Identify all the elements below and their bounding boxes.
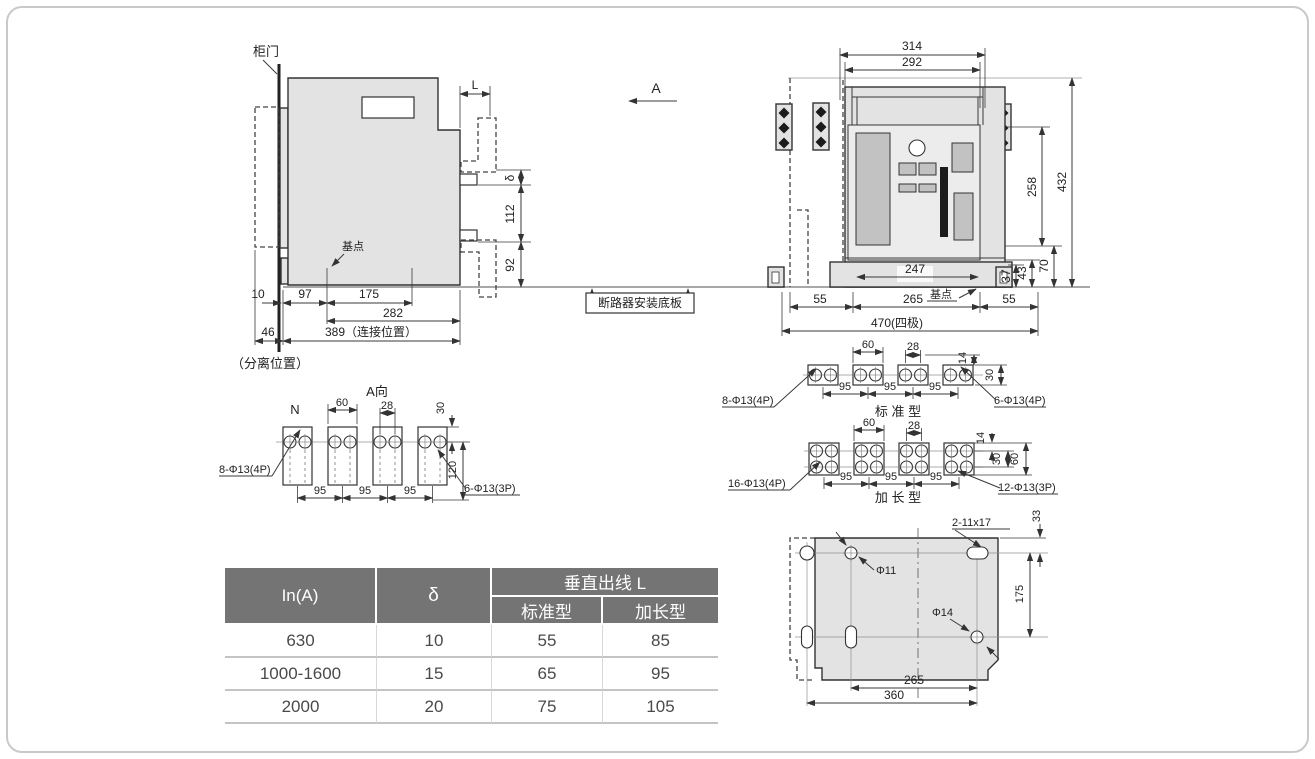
table-cell: 95 [603, 658, 718, 691]
left-foot-notch [772, 272, 779, 283]
table-header-standard: 标准型 [492, 597, 603, 625]
dim-360: 360 [884, 688, 904, 702]
dim-30: 30 [435, 402, 447, 414]
dim-55-left: 55 [813, 292, 827, 306]
view-direction-arrow: A [629, 80, 677, 101]
plate-slot-left [802, 626, 813, 648]
ghost-bracket-diamonds [779, 108, 790, 149]
table-header-in-a: In(A) [225, 568, 377, 625]
table-cell: 630 [225, 625, 377, 658]
trip-unit-display [856, 133, 890, 245]
table-cell: 55 [492, 625, 603, 658]
holes-label-12-13-3p: 12-Φ13(3P) [998, 482, 1056, 494]
panel-button-1 [899, 163, 916, 175]
dim-95: 95 [885, 471, 897, 483]
dim-95: 95 [884, 381, 896, 393]
busbar-pad [373, 427, 402, 485]
dim-60: 60 [336, 397, 348, 409]
phi14-label: Φ14 [932, 607, 953, 619]
front-view: 247 基点 314 292 258 432 70 43 37 [768, 39, 1072, 336]
ghost-step [797, 210, 808, 285]
indicator-window-top [952, 143, 973, 172]
view-arrow-label: A [651, 80, 661, 96]
dim-247: 247 [905, 262, 925, 276]
dim-95: 95 [929, 381, 941, 393]
dim-97: 97 [298, 287, 312, 301]
plate-slot-mid [846, 626, 857, 648]
door-leader [263, 60, 277, 74]
dim-46: 46 [261, 325, 275, 339]
panel-button-2 [919, 163, 936, 175]
a-view-title: A向 [366, 384, 388, 399]
plate-hole-plain [800, 546, 814, 560]
dim-95: 95 [839, 381, 851, 393]
dim-258: 258 [1025, 177, 1039, 197]
push-button [909, 140, 925, 156]
dim-70: 70 [1037, 259, 1051, 273]
dim-55-right: 55 [1002, 292, 1016, 306]
mount-plate-label: 断路器安装底板 [598, 295, 682, 310]
dim-92: 92 [503, 258, 517, 272]
dim-60: 60 [863, 417, 875, 429]
nameplate-window [362, 97, 414, 118]
dim-10: 10 [251, 287, 265, 301]
dim-265-front: 265 [903, 292, 923, 306]
base-point-label-side: 基点 [342, 240, 364, 253]
busbar-ghost-bottom [461, 240, 496, 297]
panel-button-3 [899, 184, 916, 192]
dim-14: 14 [957, 352, 969, 364]
dim-314: 314 [902, 39, 922, 53]
table-header-delta: δ [377, 568, 492, 625]
extended-type-pattern: 60 28 14 30 60 95 95 95 [728, 417, 1058, 505]
handle-slot [940, 167, 948, 237]
table-cell: 85 [603, 625, 718, 658]
indicator-window-bottom [954, 193, 973, 240]
terminal-stub-top [460, 174, 477, 185]
door-ghost-outline [255, 107, 278, 247]
dim-60-vertical: 60 [1009, 453, 1021, 465]
side-view: 柜门 基点 L δ 112 92 [231, 44, 531, 371]
holes-label-6-13-3p: 6-Φ13(3P) [464, 483, 516, 495]
n-pole-label: N [290, 402, 299, 417]
dim-112: 112 [503, 204, 517, 223]
busbar-ghost-top [461, 118, 496, 172]
spec-table: In(A) δ 垂直出线 L 标准型 加长型 630 10 55 85 1000… [225, 568, 718, 724]
slot-label: 2-11x17 [952, 517, 991, 529]
dim-28: 28 [381, 400, 393, 412]
extended-type-title: 加 长 型 [875, 490, 921, 505]
dim-175-side: 175 [359, 287, 379, 301]
separated-position-label: （分离位置） [231, 356, 309, 371]
holes-label-8-13-4p: 8-Φ13(4P) [722, 395, 774, 407]
dim-L: L [472, 78, 479, 92]
table-cell: 15 [377, 658, 492, 691]
table-cell: 2000 [225, 691, 377, 724]
holes-label-16-13-4p: 16-Φ13(4P) [728, 478, 786, 490]
table-header-extended: 加长型 [603, 597, 718, 625]
dim-14: 14 [975, 432, 987, 444]
dim-43: 43 [1015, 266, 1029, 280]
dim-delta: δ [503, 174, 517, 181]
busbar-pad [283, 427, 312, 485]
panel-button-4 [919, 184, 936, 192]
dim-292: 292 [902, 55, 922, 69]
dim-265-plate: 265 [904, 673, 924, 687]
mounting-plate [815, 538, 998, 680]
dim-60: 60 [862, 339, 874, 351]
left-bracket-diamonds [816, 107, 827, 148]
dim-28: 28 [907, 341, 919, 353]
table-cell: 105 [603, 691, 718, 724]
holes-label-8-13-4p: 8-Φ13(4P) [219, 464, 271, 476]
dim-389: 389（连接位置） [325, 324, 417, 339]
busbar-pad [328, 427, 357, 485]
dim-432: 432 [1055, 172, 1069, 192]
rail-tab [281, 258, 288, 284]
dim-95: 95 [359, 485, 371, 497]
table-cell: 65 [492, 658, 603, 691]
mounting-plate-view: 2-11x17 Φ11 Φ14 33 175 265 360 [790, 510, 1048, 706]
table-cell: 20 [377, 691, 492, 724]
dim-95: 95 [930, 471, 942, 483]
dim-95: 95 [840, 471, 852, 483]
dim-175-plate: 175 [1014, 585, 1026, 603]
dim-30: 30 [991, 453, 1003, 465]
dim-28: 28 [908, 420, 920, 432]
a-view-pattern: A向 N 60 28 30 [219, 384, 520, 503]
mounting-plate-callout: 断路器安装底板 [586, 289, 694, 313]
plate-slot-top [967, 547, 988, 559]
table-header-vertical-outlet: 垂直出线 L [492, 568, 718, 597]
holes-label-6-13-4p: 6-Φ13(4P) [994, 395, 1046, 407]
dim-37: 37 [999, 269, 1013, 283]
dim-95: 95 [314, 485, 326, 497]
dim-470: 470(四极) [871, 316, 923, 330]
table-cell: 75 [492, 691, 603, 724]
base-point-label-front: 基点 [930, 288, 952, 301]
door-label: 柜门 [253, 44, 279, 59]
dim-30: 30 [984, 369, 996, 381]
rail-strip [280, 108, 288, 248]
drawing-sheet: 柜门 基点 L δ 112 92 [0, 0, 1315, 759]
standard-type-pattern: 60 28 14 30 95 95 95 8-Φ13(4P) 6-Φ13 [722, 339, 1046, 419]
dim-95: 95 [404, 485, 416, 497]
table-cell: 1000-1600 [225, 658, 377, 691]
phi11-label: Φ11 [876, 565, 896, 577]
table-cell: 10 [377, 625, 492, 658]
dim-282: 282 [383, 306, 403, 320]
plate-ghost-extension [790, 538, 815, 680]
standard-type-title: 标 准 型 [875, 404, 921, 419]
dim-33: 33 [1031, 510, 1043, 522]
